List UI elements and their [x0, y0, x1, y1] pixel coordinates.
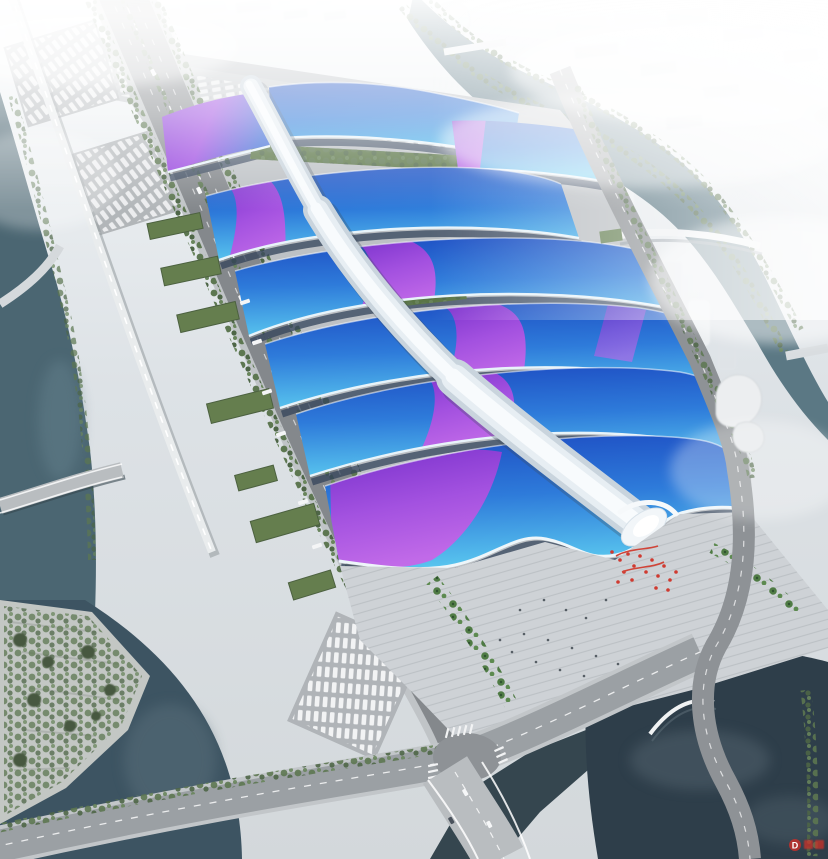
- rendering-image: D: [0, 0, 828, 859]
- watermark-logo-letter: D: [792, 841, 799, 851]
